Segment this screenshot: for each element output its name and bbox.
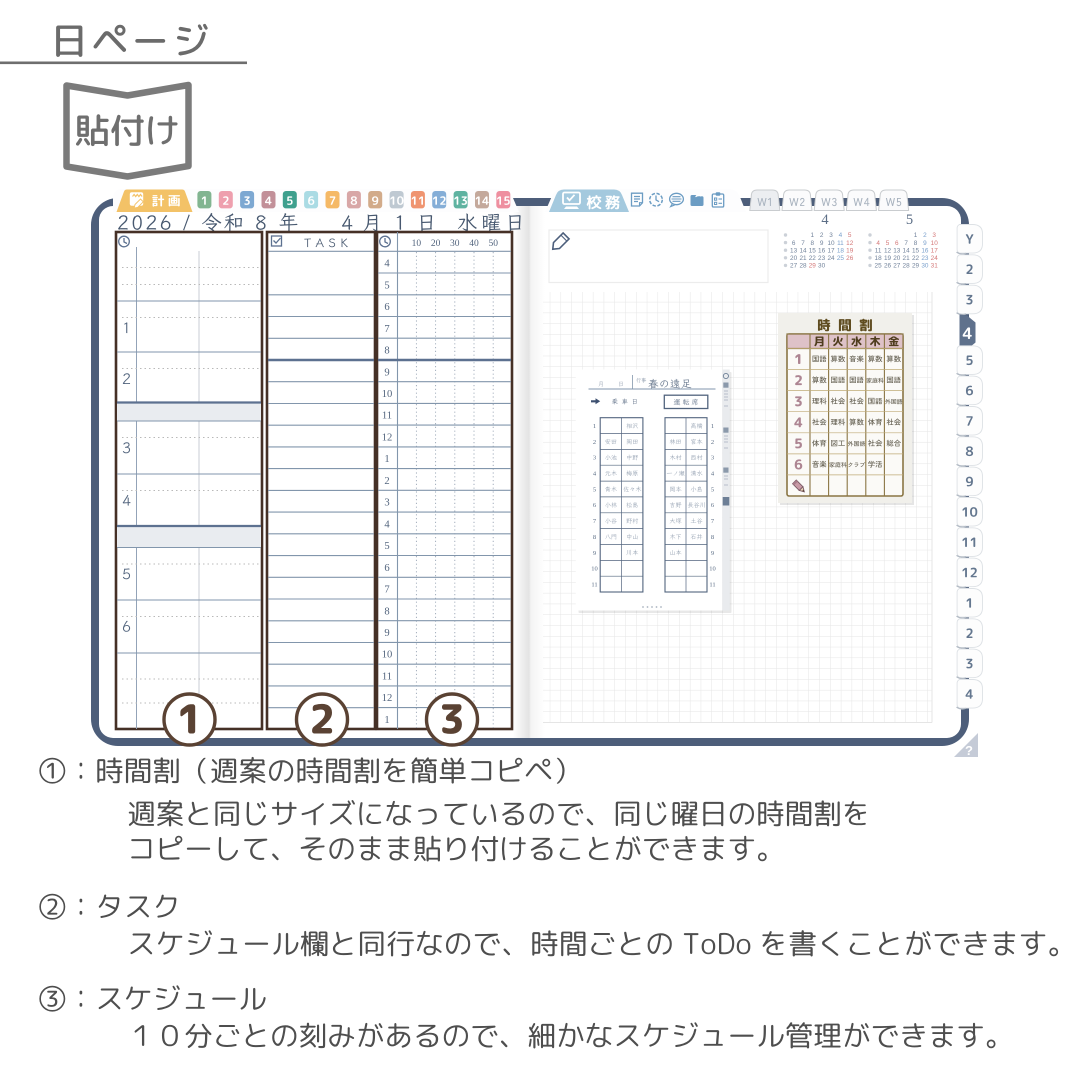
svg-text:40: 40 — [469, 239, 479, 249]
svg-text:1: 1 — [914, 232, 918, 239]
svg-text:29: 29 — [809, 263, 817, 270]
svg-text:20: 20 — [893, 255, 901, 262]
svg-text:20: 20 — [431, 239, 441, 249]
svg-text:1: 1 — [384, 715, 389, 726]
svg-text:12: 12 — [382, 432, 393, 443]
svg-text:5: 5 — [886, 240, 890, 247]
svg-text:5: 5 — [711, 486, 714, 493]
svg-text:26: 26 — [884, 263, 892, 270]
svg-text:4: 4 — [821, 212, 829, 228]
svg-text:4: 4 — [839, 232, 843, 239]
svg-text:2: 2 — [711, 439, 714, 446]
svg-text:10: 10 — [931, 240, 939, 247]
svg-text:9: 9 — [384, 367, 389, 378]
svg-text:8: 8 — [593, 534, 596, 541]
svg-text:8: 8 — [914, 240, 918, 247]
svg-text:26: 26 — [846, 255, 854, 262]
svg-text:3: 3 — [829, 232, 833, 239]
svg-text:10: 10 — [382, 389, 393, 400]
svg-text:?: ? — [965, 743, 973, 758]
svg-text:18: 18 — [837, 247, 845, 254]
svg-text:10: 10 — [709, 566, 716, 573]
svg-text:3: 3 — [593, 455, 596, 462]
svg-text:2: 2 — [923, 232, 927, 239]
svg-text:5: 5 — [384, 541, 389, 552]
svg-text:1: 1 — [711, 423, 714, 430]
svg-text:2: 2 — [820, 232, 824, 239]
svg-text:19: 19 — [884, 255, 892, 262]
svg-text:8: 8 — [811, 240, 815, 247]
svg-text:15: 15 — [912, 247, 920, 254]
svg-text:24: 24 — [827, 255, 835, 262]
svg-text:11: 11 — [382, 672, 392, 683]
svg-text:13: 13 — [893, 247, 901, 254]
svg-text:5: 5 — [906, 212, 913, 228]
svg-text:18: 18 — [875, 255, 883, 262]
svg-text:11: 11 — [837, 240, 844, 247]
svg-text:9: 9 — [923, 240, 927, 247]
svg-text:20: 20 — [790, 255, 798, 262]
svg-text:27: 27 — [893, 263, 901, 270]
svg-text:12: 12 — [846, 240, 854, 247]
svg-text:10: 10 — [827, 240, 835, 247]
svg-text:50: 50 — [488, 239, 498, 249]
svg-text:21: 21 — [903, 255, 911, 262]
svg-text:9: 9 — [820, 240, 824, 247]
svg-text:1: 1 — [384, 454, 389, 465]
svg-text:8: 8 — [384, 346, 389, 357]
svg-text:9: 9 — [593, 550, 596, 557]
svg-text:11: 11 — [382, 411, 392, 422]
svg-text:24: 24 — [931, 255, 939, 262]
svg-text:7: 7 — [384, 585, 389, 596]
svg-text:6: 6 — [384, 302, 389, 313]
svg-text:4: 4 — [876, 240, 880, 247]
svg-text:4: 4 — [384, 259, 390, 270]
svg-text:30: 30 — [921, 263, 929, 270]
svg-text:25: 25 — [837, 255, 845, 262]
svg-text:7: 7 — [904, 240, 908, 247]
svg-text:6: 6 — [895, 240, 899, 247]
svg-text:13: 13 — [790, 247, 798, 254]
svg-text:27: 27 — [790, 263, 798, 270]
svg-text:30: 30 — [450, 239, 460, 249]
svg-text:23: 23 — [818, 255, 826, 262]
svg-text:1: 1 — [811, 232, 815, 239]
svg-text:7: 7 — [384, 324, 389, 335]
svg-text:10: 10 — [382, 650, 393, 661]
svg-text:8: 8 — [711, 534, 714, 541]
svg-text:28: 28 — [799, 263, 807, 270]
svg-text:16: 16 — [921, 247, 929, 254]
svg-text:12: 12 — [382, 693, 393, 704]
svg-text:9: 9 — [384, 628, 389, 639]
svg-text:21: 21 — [799, 255, 807, 262]
svg-text:12: 12 — [884, 247, 892, 254]
svg-text:17: 17 — [827, 247, 835, 254]
svg-text:31: 31 — [931, 263, 939, 270]
svg-text:28: 28 — [903, 263, 911, 270]
svg-text:14: 14 — [799, 247, 807, 254]
svg-text:4: 4 — [384, 519, 390, 530]
svg-text:30: 30 — [818, 263, 826, 270]
svg-text:5: 5 — [593, 486, 596, 493]
svg-text:23: 23 — [921, 255, 929, 262]
svg-text:2: 2 — [593, 439, 596, 446]
svg-text:11: 11 — [709, 582, 715, 589]
svg-text:25: 25 — [875, 263, 883, 270]
svg-text:22: 22 — [809, 255, 817, 262]
svg-text:10: 10 — [412, 239, 422, 249]
svg-text:3: 3 — [384, 498, 389, 509]
svg-text:11: 11 — [591, 582, 597, 589]
svg-text:5: 5 — [848, 232, 852, 239]
svg-text:7: 7 — [801, 240, 805, 247]
svg-text:1: 1 — [593, 423, 596, 430]
svg-text:16: 16 — [818, 247, 826, 254]
svg-text:22: 22 — [912, 255, 920, 262]
svg-text:8: 8 — [384, 606, 389, 617]
svg-text:6: 6 — [792, 240, 796, 247]
svg-text:14: 14 — [903, 247, 911, 254]
svg-text:10: 10 — [591, 566, 598, 573]
svg-text:17: 17 — [931, 247, 939, 254]
svg-text:6: 6 — [384, 563, 389, 574]
svg-text:2: 2 — [384, 476, 389, 487]
svg-text:19: 19 — [846, 247, 854, 254]
svg-text:9: 9 — [711, 550, 714, 557]
svg-text:15: 15 — [809, 247, 817, 254]
svg-text:29: 29 — [912, 263, 920, 270]
svg-text:3: 3 — [711, 455, 714, 462]
svg-text:3: 3 — [932, 232, 936, 239]
svg-text:11: 11 — [875, 247, 882, 254]
svg-text:5: 5 — [384, 280, 389, 291]
